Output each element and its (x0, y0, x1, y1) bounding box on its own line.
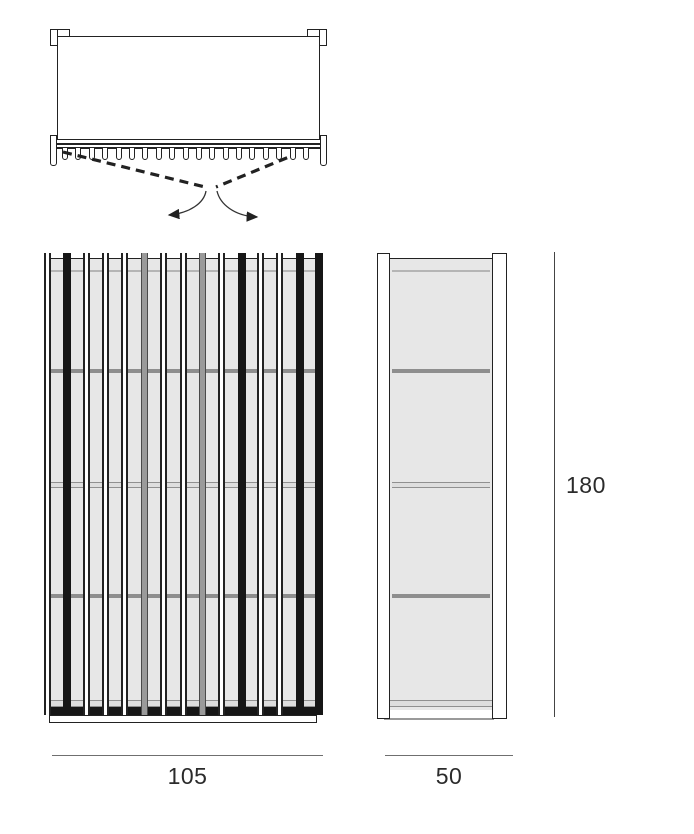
side-base-line (384, 718, 494, 720)
front-slat (218, 253, 225, 715)
swing-dash-right (216, 152, 290, 187)
door-peg (303, 147, 309, 160)
side-front-post (377, 253, 390, 719)
swing-arrow-left (169, 191, 206, 215)
front-slat (296, 253, 304, 715)
door-swing-indicator (40, 140, 290, 230)
front-slat (276, 253, 283, 715)
front-slat (121, 253, 128, 715)
technical-drawing-canvas: 105 50 180 (0, 0, 694, 834)
shelf-line (392, 594, 490, 598)
swing-arrow-right (217, 191, 257, 217)
front-slat (83, 253, 90, 715)
swing-dash-left (63, 152, 205, 187)
side-view (377, 253, 507, 723)
hinge-bracket-top-right-tab (319, 29, 327, 46)
width-dimension-label: 105 (52, 763, 323, 790)
front-slat (102, 253, 109, 715)
front-slat (315, 253, 323, 715)
front-slat (257, 253, 264, 715)
door-end-bracket-right (320, 135, 327, 166)
side-back-post (492, 253, 507, 719)
front-view (44, 253, 322, 723)
side-bottom-shelf-line (390, 700, 492, 707)
height-dimension-line (554, 252, 555, 717)
cabinet-body-outline (57, 36, 320, 140)
door-end-bracket-left (50, 135, 57, 166)
front-slat (44, 253, 51, 715)
front-slat (199, 253, 206, 715)
shelf-line (392, 482, 490, 488)
depth-dimension-label: 50 (385, 763, 513, 790)
door-peg (290, 147, 296, 160)
height-dimension-label: 180 (566, 472, 606, 499)
width-dimension-line (52, 755, 323, 756)
front-slat (141, 253, 148, 715)
shelf-line (392, 369, 490, 373)
depth-dimension-line (385, 755, 513, 756)
front-slat (238, 253, 246, 715)
front-plinth (49, 715, 317, 723)
front-slat (160, 253, 167, 715)
side-panel (390, 258, 492, 710)
front-slat (180, 253, 187, 715)
side-top-inner-line (392, 270, 490, 272)
front-slat (63, 253, 71, 715)
